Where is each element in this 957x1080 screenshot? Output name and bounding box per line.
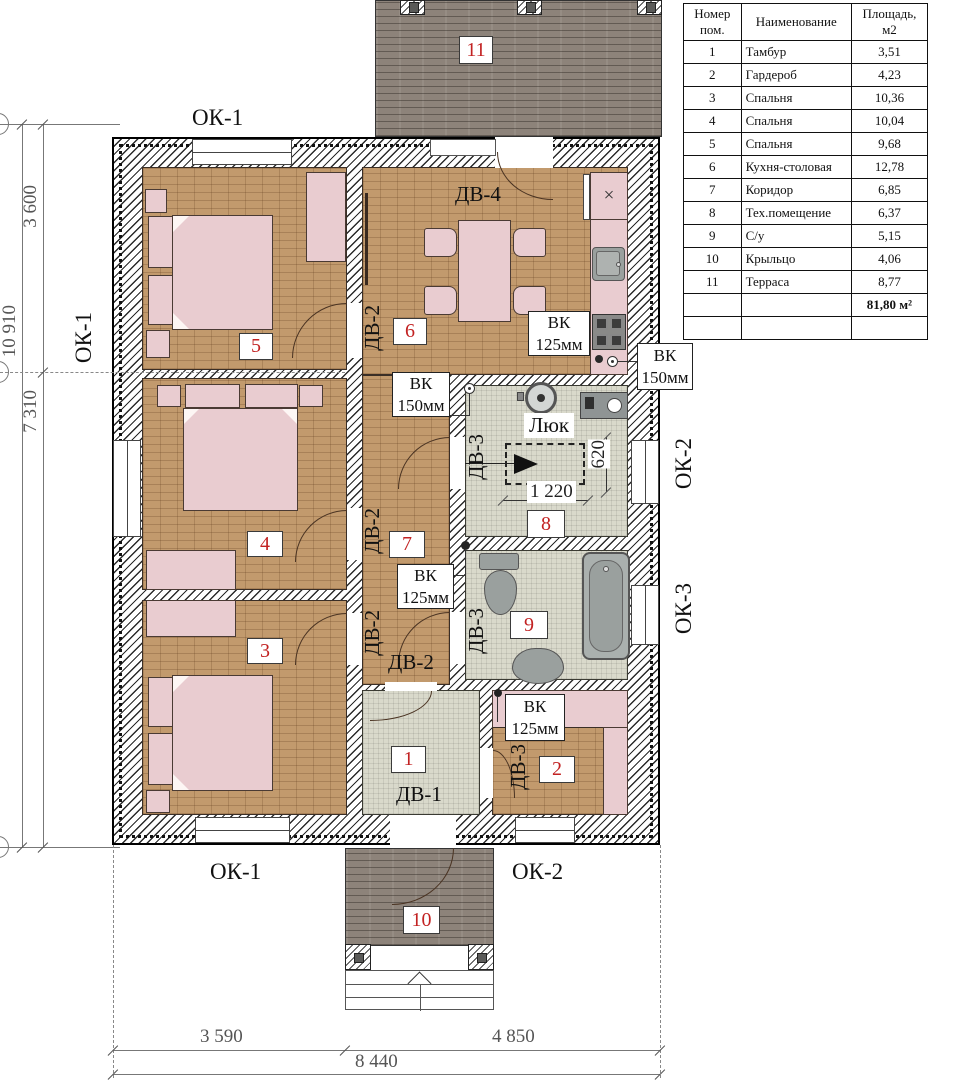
- washer-drawer: [585, 397, 594, 409]
- terrace-area: [375, 0, 662, 137]
- room-name: Кухня-столовая: [741, 156, 851, 179]
- room-area: 3,51: [851, 41, 927, 64]
- room-badge-10: 10: [403, 906, 440, 934]
- room-name: Тех.помещение: [741, 202, 851, 225]
- vent-stem: [465, 549, 466, 576]
- room-number: 9: [524, 614, 534, 637]
- door-dv1-opening: [390, 815, 456, 846]
- room-name: Тамбур: [741, 41, 851, 64]
- room-badge-2: 2: [539, 756, 575, 783]
- nightstand: [299, 385, 323, 407]
- floor-plan-canvas: ×: [0, 0, 957, 1080]
- label-dv2-corridor-2: ДВ-2: [362, 610, 383, 656]
- chair: [424, 228, 457, 257]
- label-ok1-top: ОК-1: [192, 106, 243, 129]
- room-badge-6: 6: [393, 318, 427, 345]
- room-name: Спальня: [741, 133, 851, 156]
- nightstand: [148, 275, 173, 325]
- legend-header-row: Номер пом. Наименование Площадь, м2: [684, 4, 928, 41]
- room-name: Коридор: [741, 179, 851, 202]
- label-ok1-left: ОК-1: [72, 312, 95, 363]
- room-area: 10,36: [851, 87, 927, 110]
- label-ok3-right: ОК-3: [672, 583, 695, 634]
- door-opening-room2: [480, 748, 493, 798]
- vent-point: [494, 689, 502, 697]
- dim-line: [113, 1074, 660, 1075]
- room-num: 3: [684, 87, 742, 110]
- room-number: 7: [402, 533, 412, 556]
- dim-3600: 3 600: [20, 185, 42, 228]
- room-badge-4: 4: [247, 531, 283, 557]
- dim-line: [43, 124, 44, 847]
- vent-size: 150мм: [641, 367, 688, 388]
- table-row: 11Терраса8,77: [684, 271, 928, 294]
- label-dv3-room2: ДВ-3: [508, 744, 529, 790]
- room-area: 4,06: [851, 248, 927, 271]
- room-num: 11: [684, 271, 742, 294]
- door-opening-room8: [450, 437, 465, 489]
- dim-7310: 7 310: [20, 390, 42, 433]
- vent-size: 150мм: [397, 395, 444, 416]
- room-area: 10,04: [851, 110, 927, 133]
- axis-line: [0, 372, 345, 373]
- dining-table: [458, 220, 511, 322]
- room-number: 6: [405, 320, 415, 343]
- washer-door: [607, 398, 622, 413]
- window-ok1-top: [192, 139, 292, 165]
- pillow: [173, 676, 189, 692]
- room-num: 1: [684, 41, 742, 64]
- label-dv1: ДВ-1: [396, 784, 442, 805]
- boiler-valve: [517, 392, 524, 401]
- burner: [595, 317, 608, 330]
- room-2-counter-right: [603, 727, 628, 815]
- window-ok1-bottom: [195, 817, 290, 843]
- col-header-area: Площадь, м2: [851, 4, 927, 41]
- vent-stem: [469, 394, 470, 415]
- dim-3590: 3 590: [200, 1026, 243, 1048]
- room-badge-5: 5: [239, 333, 273, 360]
- room-number: 11: [466, 39, 485, 62]
- table-row: 7Коридор6,85: [684, 179, 928, 202]
- vent-box-vk125-room2: ВК125мм: [505, 694, 565, 741]
- bed: [183, 408, 298, 511]
- sink-drain: [616, 262, 621, 267]
- vent-stem: [497, 696, 498, 722]
- bed: [172, 215, 273, 330]
- bathtub-drain: [603, 566, 609, 572]
- table-row: 1Тамбур3,51: [684, 41, 928, 64]
- dim-620: 620: [588, 440, 610, 469]
- label-dv2-kitchen: ДВ-2: [362, 305, 383, 351]
- table-row: 4Спальня10,04: [684, 110, 928, 133]
- room-num: 4: [684, 110, 742, 133]
- room-badge-9: 9: [510, 611, 548, 639]
- vent-box-vk150-corridor: ВК150мм: [392, 372, 450, 417]
- room-badge-1: 1: [391, 746, 426, 773]
- column-core: [646, 2, 656, 13]
- vent-stem: [618, 361, 637, 362]
- label-dv2-corridor-bottom: ДВ-2: [388, 652, 434, 673]
- ext-line: [0, 847, 120, 848]
- terrace-column: [517, 0, 542, 15]
- vent-stem: [454, 575, 466, 576]
- ext-line-dashed: [113, 845, 114, 1078]
- room-number: 8: [541, 513, 551, 536]
- label-hatch: Люк: [524, 413, 574, 438]
- legend-empty-row: [684, 317, 928, 340]
- fridge: ×: [590, 172, 628, 220]
- ext-line: [0, 124, 120, 125]
- label-ok2-right: ОК-2: [672, 438, 695, 489]
- room-name: Гардероб: [741, 64, 851, 87]
- room-num: 8: [684, 202, 742, 225]
- door-opening-room1: [385, 682, 437, 691]
- vent-size: 125мм: [402, 587, 449, 608]
- room-area: 6,85: [851, 179, 927, 202]
- table-row: 9С/у5,15: [684, 225, 928, 248]
- room-badge-3: 3: [247, 638, 283, 664]
- room-number: 2: [552, 758, 562, 781]
- room-name: Крыльцо: [741, 248, 851, 271]
- fridge-door: [583, 174, 590, 220]
- pillow: [173, 216, 189, 232]
- room-num: 9: [684, 225, 742, 248]
- label-ok1-bottom: ОК-1: [210, 860, 261, 883]
- vent-label: ВК: [548, 312, 571, 333]
- hatch-arrow: [514, 454, 538, 474]
- room-number: 1: [404, 748, 414, 771]
- dim-1220: 1 220: [527, 481, 576, 503]
- room-number: 10: [412, 909, 432, 932]
- terrace-column: [400, 0, 425, 15]
- bathtub-basin: [589, 560, 623, 652]
- pillow: [245, 384, 298, 408]
- dresser: [146, 790, 170, 813]
- window-ok2-bottom: [515, 817, 575, 843]
- dim-4850: 4 850: [492, 1026, 535, 1048]
- room-area: 5,15: [851, 225, 927, 248]
- col-header-number: Номер пом.: [684, 4, 742, 41]
- legend-total-row: 81,80 м²: [684, 294, 928, 317]
- tall-wardrobe: [306, 172, 346, 262]
- column-core: [477, 953, 487, 963]
- chair: [424, 286, 457, 315]
- burner: [610, 317, 623, 330]
- room-area: 12,78: [851, 156, 927, 179]
- room-area: 8,77: [851, 271, 927, 294]
- terrace-sill: [430, 139, 496, 156]
- column-core: [354, 953, 364, 963]
- pillow: [184, 409, 199, 424]
- nightstand: [157, 385, 181, 407]
- wardrobe: [146, 550, 236, 590]
- bathtub: [582, 552, 630, 660]
- toilet-tank: [479, 553, 519, 570]
- label-dv2-corridor-1: ДВ-2: [362, 508, 383, 554]
- table-row: 2Гардероб4,23: [684, 64, 928, 87]
- room-badge-7: 7: [389, 531, 425, 558]
- room-area: 9,68: [851, 133, 927, 156]
- room-area: 6,37: [851, 202, 927, 225]
- label-dv4: ДВ-4: [455, 184, 501, 205]
- table-row: 10Крыльцо4,06: [684, 248, 928, 271]
- label-dv3-room9: ДВ-3: [466, 608, 487, 654]
- table-row: 3Спальня10,36: [684, 87, 928, 110]
- vent-size: 125мм: [511, 718, 558, 739]
- terrace-column: [637, 0, 662, 15]
- room-badge-8: 8: [527, 510, 565, 538]
- room-num: 5: [684, 133, 742, 156]
- wardrobe: [145, 189, 167, 213]
- nightstand: [148, 677, 174, 727]
- vent-stem: [450, 415, 470, 416]
- porch-column: [468, 944, 494, 970]
- dim-10910: 10 910: [0, 305, 21, 357]
- pillow: [173, 774, 189, 790]
- bathroom-sink: [512, 648, 564, 684]
- vent-point: [464, 383, 475, 394]
- vent-point: [595, 355, 603, 363]
- room-number: 4: [260, 533, 270, 556]
- window-ok1-left: [113, 440, 141, 537]
- vent-label: ВК: [524, 696, 547, 717]
- vent-label: ВК: [654, 345, 677, 366]
- dim-8440: 8 440: [355, 1051, 398, 1073]
- table-row: 6Кухня-столовая12,78: [684, 156, 928, 179]
- vent-label: ВК: [410, 373, 433, 394]
- porch-column: [345, 944, 371, 970]
- room-number: 5: [251, 335, 261, 358]
- washing-machine: [580, 392, 628, 419]
- nightstand: [148, 733, 174, 785]
- stove: [592, 314, 626, 350]
- vent-point: [607, 356, 618, 367]
- boiler: [525, 382, 557, 414]
- wardrobe: [146, 600, 236, 637]
- ext-line-dashed: [660, 845, 661, 1078]
- room-number: 3: [260, 640, 270, 663]
- label-dv3-room8: ДВ-3: [466, 434, 487, 480]
- pillow: [173, 313, 189, 329]
- room-name: Спальня: [741, 110, 851, 133]
- room-num: 2: [684, 64, 742, 87]
- chair: [513, 228, 546, 257]
- table-row: 5Спальня9,68: [684, 133, 928, 156]
- total-area: 81,80 м²: [851, 294, 927, 317]
- room-num: 6: [684, 156, 742, 179]
- column-core: [526, 2, 536, 13]
- pillow: [282, 409, 297, 424]
- col-header-name: Наименование: [741, 4, 851, 41]
- vent-box-vk125-corridor: ВК125мм: [397, 564, 454, 609]
- room-badge-11: 11: [459, 36, 493, 64]
- radiator: [365, 193, 368, 285]
- pillow: [185, 384, 240, 408]
- window-ok2-right: [631, 440, 659, 504]
- burner: [610, 334, 623, 347]
- vent-box-vk125-kitchen: ВК125мм: [528, 311, 590, 356]
- boiler-core: [537, 394, 545, 402]
- dim-line: [22, 124, 23, 847]
- vent-label: ВК: [414, 565, 437, 586]
- room-name: С/у: [741, 225, 851, 248]
- room-name: Спальня: [741, 87, 851, 110]
- nightstand: [148, 216, 173, 268]
- window-ok3-right: [631, 585, 659, 645]
- burner: [595, 334, 608, 347]
- door-opening-room9: [450, 612, 465, 664]
- bed: [172, 675, 273, 791]
- dresser: [146, 330, 170, 358]
- label-ok2-bottom: ОК-2: [512, 860, 563, 883]
- room-name: Терраса: [741, 271, 851, 294]
- kitchen-sink: [592, 247, 625, 281]
- column-core: [409, 2, 419, 13]
- vent-box-vk150-right: ВК150мм: [637, 343, 693, 390]
- room-num: 10: [684, 248, 742, 271]
- table-row: 8Тех.помещение6,37: [684, 202, 928, 225]
- room-area: 4,23: [851, 64, 927, 87]
- room-legend-table: Номер пом. Наименование Площадь, м2 1Там…: [683, 3, 928, 340]
- room-num: 7: [684, 179, 742, 202]
- vent-size: 125мм: [535, 334, 582, 355]
